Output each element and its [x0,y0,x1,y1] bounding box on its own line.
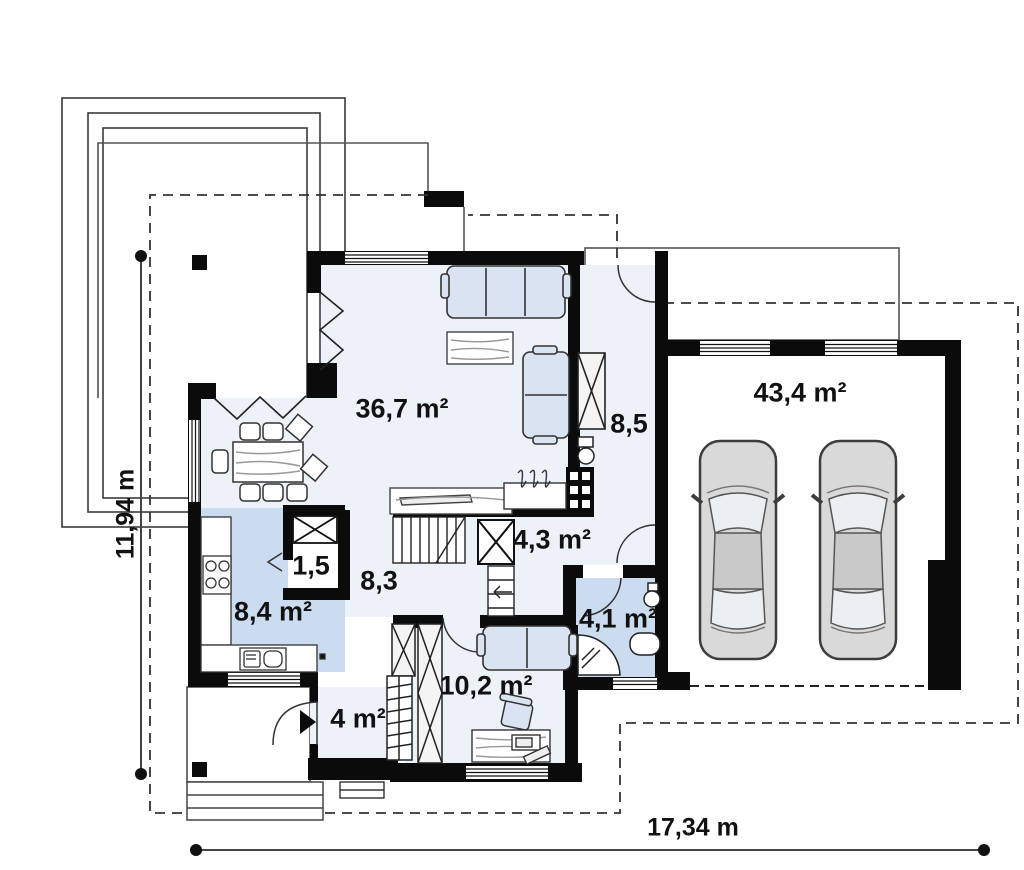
window-icon [228,673,300,686]
room-label-stairhall: 8,3 [360,566,398,597]
room-label-bathroom: 4,1 m² [579,604,657,635]
window-icon [466,766,548,779]
stair-direction-arrow [488,566,514,616]
chair-icon [263,423,283,440]
chair-icon [287,484,307,501]
dimension-width-label: 17,34 m [647,814,739,843]
washbasin-icon [630,633,660,655]
wardrobe-icon [392,624,415,676]
chair-icon [212,450,228,473]
closet-rail-icon [387,676,412,760]
kitchen-hob-icon [203,556,231,594]
sofa-2seat-icon [523,346,569,444]
tv-sideboard-icon [390,488,512,514]
room-label-living: 36,7 m² [355,394,448,425]
window-icon [613,678,657,689]
sofa-2seat-icon [477,626,577,670]
room-label-office: 10,2 m² [439,671,532,702]
dining-table-icon [233,442,303,482]
chair-icon [240,484,260,501]
fireplace-icon [478,520,514,564]
window-icon [825,341,897,355]
window-icon [700,341,770,355]
room-label-kitchen: 8,4 m² [234,597,312,628]
chair-icon [240,423,260,440]
car-icon [812,441,904,659]
pantry-shelf-icon [293,516,337,543]
floor-plan-canvas [0,0,1024,870]
kitchen-sink-icon [240,648,286,670]
wardrobe-icon [578,353,605,429]
entry-porch [187,687,323,820]
room-label-corridor: 4,3 m² [513,525,591,556]
window-icon [189,420,200,502]
floor-plan: 36,7 m² 8,5 43,4 m² 1,5 8,3 8,4 m² 4,3 m… [0,0,1024,870]
sofa-3seat-icon [441,266,571,318]
coffee-table-icon [447,332,513,364]
room-label-vestibule: 4 m² [330,704,386,735]
room-label-pantry: 1,5 [292,551,330,582]
stairs-icon [393,517,465,563]
window-icon [340,782,384,798]
desk-icon [472,730,550,764]
dimension-height-label: 11,94 m [112,469,141,559]
room-label-hallupper: 8,5 [610,409,648,440]
toilet-icon [578,437,594,464]
car-icon [692,441,784,659]
chimney-icon [424,191,464,207]
window-icon [345,252,428,264]
wardrobe-icon [418,624,442,763]
chair-icon [263,484,283,501]
room-label-garage: 43,4 m² [753,378,846,409]
